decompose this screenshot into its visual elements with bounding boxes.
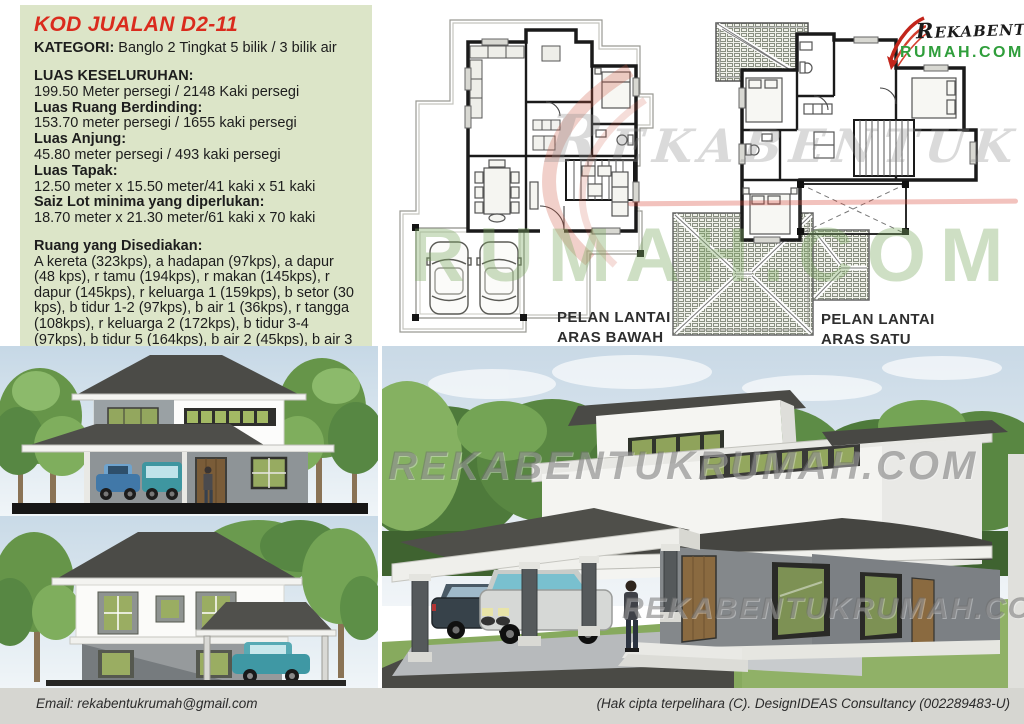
side-door [912,578,934,644]
sale-code-title: KOD JUALAN D2-11 [34,13,358,37]
footer: Email: rekabentukrumah@gmail.com (Hak ci… [0,688,1024,724]
plan-car [427,242,471,314]
plan-balcony [797,181,909,235]
window [196,650,232,678]
logo: Rekabentuk RUMAH.COM [884,10,1016,76]
spec-row: LUAS KESELURUHAN:199.50 Meter persegi / … [34,69,358,101]
category-value: Banglo 2 Tingkat 5 bilik / 3 bilik air [114,40,336,56]
perspective-render [382,346,1024,688]
first-plan-label: PELAN LANTAI ARAS SATU [821,310,935,349]
spec-row: Luas Tapak:12.50 meter x 15.50 meter/41 … [34,164,358,196]
footer-email: Email: rekabentukrumah@gmail.com [36,696,258,711]
window [860,572,902,640]
plan-car [477,242,521,314]
ground-plan-label: PELAN LANTAI ARAS BAWAH [557,308,671,347]
front-elevation-render [0,346,378,516]
logo-domain: RUMAH.COM [900,44,1024,62]
info-panel: KOD JUALAN D2-11 KATEGORI: Banglo 2 Ting… [20,5,372,347]
window [98,650,134,678]
rooms-label: Ruang yang Disediakan: [34,239,358,255]
category-line: KATEGORI: Banglo 2 Tingkat 5 bilik / 3 b… [34,40,358,56]
category-label: KATEGORI: [34,40,114,56]
footer-copyright: (Hak cipta terpelihara (C). DesignIDEAS … [597,696,1010,711]
side-elevation-render [0,516,378,688]
spec-row: Luas Ruang Berdinding:153.70 meter perse… [34,101,358,133]
front-door [682,556,716,642]
spec-row: Saiz Lot minima yang diperlukan:18.70 me… [34,195,358,227]
rooms-paragraph: Ruang yang Disediakan:A kereta (323kps),… [34,239,358,364]
spec-row: Luas Anjung:45.80 meter persegi / 493 ka… [34,132,358,164]
logo-name: Rekabentuk [916,14,1024,44]
plan-stairs [854,120,914,176]
brochure-page: KOD JUALAN D2-11 KATEGORI: Banglo 2 Ting… [0,0,1024,724]
window [98,592,138,634]
window [772,562,830,640]
